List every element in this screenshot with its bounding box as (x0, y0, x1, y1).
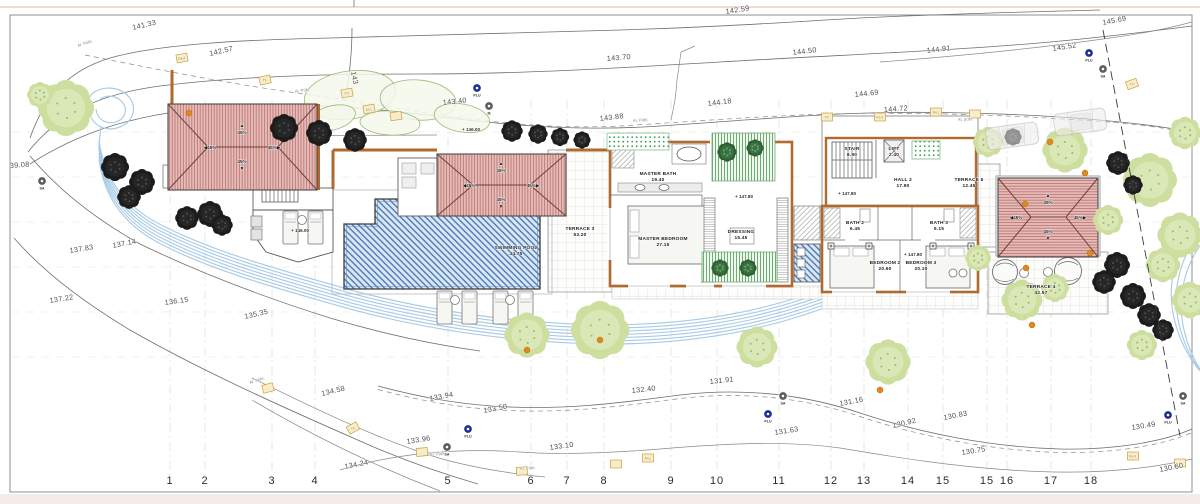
contour-elevation-label: 130.83 (943, 409, 968, 422)
roof-slope-label: 45% (496, 168, 505, 173)
closet (777, 198, 788, 282)
public-alignment-label: Al. públ. (958, 116, 973, 122)
contour-elevation-label: 144.91 (926, 43, 951, 55)
tree-light (1172, 282, 1200, 319)
utility-marker-label: PLU (1164, 421, 1172, 425)
tree-dark (1123, 175, 1142, 194)
tree-dark (528, 124, 547, 143)
utility-box-label: Red. (876, 116, 884, 120)
contour-elevation-label: 142.59 (725, 3, 750, 16)
utility-box: Arq. (643, 454, 654, 462)
contour-elevation-label: 144.50 (792, 45, 817, 57)
shrub-accent (524, 347, 530, 353)
contour-elevation-label: 130.92 (891, 416, 917, 430)
floor-level-label: + 147.80 (838, 191, 856, 196)
contour-elevation-label: 144.69 (854, 88, 879, 99)
tree-dark (1092, 270, 1116, 294)
roof-slope-label-left: ◀45% (204, 145, 217, 150)
room-name-label: TERRACE 5 (955, 177, 984, 183)
planter-box (912, 141, 940, 159)
tree-dark (270, 114, 298, 142)
utility-box: Tif. (1125, 78, 1138, 89)
shrub-accent (1047, 139, 1053, 145)
public-alignment-label: Al. Públ. (77, 38, 93, 48)
shower (824, 208, 840, 238)
shrub-accent (1087, 250, 1093, 256)
utility-box-label: Red. (1129, 455, 1137, 459)
tree-dark (306, 120, 332, 146)
tree-dark (175, 206, 199, 230)
utility-box: Arq. (931, 108, 942, 116)
shrub-accent (1022, 201, 1028, 207)
utility-box (262, 383, 275, 394)
room-name-label: LIFT (889, 146, 900, 152)
utility-marker-label: PLU (464, 435, 472, 439)
side-table (506, 296, 515, 305)
bedroom-wing (822, 206, 978, 295)
shrub-accent (1023, 265, 1029, 271)
parked-car (985, 121, 1040, 150)
room-name-label: MASTER BATH (640, 171, 677, 177)
contour-elevation-label: 136.15 (164, 295, 189, 307)
roof-slope-label-right: 45%▶ (268, 145, 281, 150)
utility-marker-label: PLU (1085, 59, 1093, 63)
contour-elevation-label: 145.52 (1052, 40, 1077, 53)
roof-slope-arrow-down: ▼ (240, 166, 245, 172)
grid-axis-number: 18 (1084, 475, 1098, 487)
tree-light (27, 82, 53, 108)
room-name-label: STAIR (844, 146, 859, 152)
utility-marker-label: M (488, 112, 491, 116)
contour-elevation-label: 142.57 (208, 44, 234, 58)
contour-elevation-label: 137.22 (49, 292, 74, 305)
grid-axis-number: 3 (268, 475, 275, 487)
utility-marker-label: SA (445, 453, 450, 457)
roof-slope-arrow-up: ▲ (240, 123, 245, 129)
grid-axis-number: 5 (444, 475, 451, 487)
utility-marker-label: PLU (764, 420, 772, 424)
tree-evergreen (739, 259, 756, 276)
utility-box: Tif. (822, 113, 833, 121)
grid-axis-number: 8 (600, 475, 607, 487)
public-alignment-label: Al. Públ. (633, 117, 649, 123)
roof-slope-label-left: ◀45% (463, 183, 476, 188)
contour-elevation-label: 39.08 (10, 160, 30, 170)
tree-dark (551, 128, 569, 146)
contour-elevation-label: 135.35 (243, 307, 269, 321)
tree-light (865, 339, 910, 384)
roof-slope-label: 45% (1043, 200, 1052, 205)
utility-marker-label: SA (1181, 402, 1186, 406)
grid-axis-number: 6 (527, 475, 534, 487)
utility-box: Tif. (259, 75, 271, 85)
grid-axis-number: 2 (201, 475, 208, 487)
shrub-accent (1082, 170, 1088, 176)
room-area-label: 9.15 (934, 226, 944, 232)
tree-light (965, 245, 991, 271)
room-name-label: MASTER BEDROOM (638, 236, 687, 242)
tree-light (571, 301, 629, 359)
room-area-label: 20.60 (878, 266, 891, 272)
roof-slope-arrow-down: ▼ (1046, 236, 1051, 242)
shrub-accent (877, 387, 883, 393)
tree-dark (501, 120, 523, 142)
grid-axis-number: 15 (936, 475, 950, 487)
contour-elevation-label: 130.75 (961, 444, 986, 457)
roof-slope-label-right: 45%▶ (527, 183, 540, 188)
public-alignment-label: Al. Públ. (430, 451, 446, 457)
shrub-accent (186, 110, 192, 116)
grid-axis-number: 14 (901, 475, 915, 487)
room-area-label: 12.45 (962, 183, 975, 189)
tree-light (1127, 330, 1157, 360)
utility-box-label: Tif. (824, 116, 829, 120)
roof-slope-label: 45% (237, 130, 246, 135)
contour-elevation-label: 137.14 (112, 237, 137, 250)
site-plan-page: Red.Tif.Tif.Arq.Tif.Red.Arq.Tif.Tif.Arq.… (0, 0, 1200, 504)
room-name-label: BATH 3 (930, 220, 948, 226)
contour-elevation-label: 143.88 (599, 111, 624, 123)
room-area-label: 27.15 (656, 242, 669, 248)
room-area-label: 17.90 (896, 183, 909, 189)
public-alignment-label: Al. Públ. (520, 465, 536, 471)
tree-dark (117, 185, 141, 209)
grid-axis-number: 10 (710, 475, 724, 487)
contour-elevation-label: 131.63 (774, 424, 799, 437)
contour-elevation-label: 145.69 (1102, 14, 1127, 27)
tree-evergreen (717, 142, 736, 161)
grid-axis-number: 4 (311, 475, 318, 487)
utility-box-label: Arq. (645, 457, 652, 461)
utility-marker-label: SA (1101, 75, 1106, 79)
roof-slope-label-left: ◀45% (1010, 215, 1023, 220)
utility-marker-label: PLU (473, 94, 481, 98)
tree-evergreen (711, 259, 728, 276)
grid-axis-number: 17 (1044, 475, 1058, 487)
tree-light (1093, 205, 1123, 235)
room-area-label: 6.45 (850, 226, 860, 232)
room-area-label: 15.45 (734, 235, 747, 241)
roof-slope-label: 45% (237, 159, 246, 164)
tree-dark (1120, 283, 1146, 309)
room-name-label: BATH 2 (846, 220, 864, 226)
basin (635, 185, 645, 191)
room-name-label: TERRACE 4 (1027, 284, 1056, 290)
utility-box-label: Arq. (933, 111, 940, 115)
contour-elevation-label: 130.60 (1159, 461, 1184, 474)
utility-box (416, 448, 428, 457)
room-area-label: 20.10 (914, 266, 927, 272)
grid-axis-number: 1 (166, 475, 173, 487)
contour-elevation-label: 131.91 (709, 375, 734, 386)
contour-elevation-label: 144.18 (707, 96, 732, 108)
roof-slope-arrow-up: ▲ (499, 161, 504, 167)
shrub-accent (1029, 322, 1035, 328)
side-table (451, 296, 460, 305)
utility-box (390, 111, 402, 120)
bed (628, 206, 706, 264)
tree-dark (343, 128, 367, 152)
contour-elevation-label: 137.83 (69, 242, 94, 255)
floor-level-label: + 146.00 (462, 127, 480, 132)
room-name-label: BEDROOM 2 (870, 260, 901, 266)
contour-elevation-label: 134.58 (320, 383, 346, 398)
tree-dark (1152, 319, 1174, 341)
utility-box (611, 460, 622, 468)
room-name-label: SWIMMING POOL (494, 245, 537, 251)
floor-level-label: + 147.80 (904, 252, 922, 257)
room-name-label: HALL 2 (894, 177, 912, 183)
room-name-label: DRESSING (728, 229, 755, 235)
contour-elevation-label: 144.72 (884, 103, 909, 114)
tree-dark (211, 214, 233, 236)
utility-marker-label: SA (781, 402, 786, 406)
utility-box: Red. (1128, 452, 1139, 460)
tree-dark (101, 153, 129, 181)
tree-light (1146, 248, 1181, 283)
room-area-label: 2.40 (889, 152, 899, 158)
utility-marker-label: SA (40, 187, 45, 191)
contour-elevation-label: 131.16 (839, 395, 864, 408)
contour-elevation-label: 143.70 (606, 52, 631, 63)
floor-level-label: + 147.80 (735, 194, 753, 199)
room-name-label: TERRACE 3 (566, 226, 595, 232)
room-area-label: 19.40 (651, 177, 664, 183)
room-area-label: 8.90 (847, 152, 857, 158)
tree-light (736, 326, 777, 367)
room-area-label: 53.20 (573, 232, 586, 238)
grid-axis-number: 11 (772, 475, 785, 487)
grid-axis-number: 13 (857, 475, 871, 487)
room-area-label: 44.75 (509, 251, 522, 257)
room-area-label: 42.57 (1034, 290, 1047, 296)
utility-box: Tif. (341, 88, 353, 98)
exterior-stairs (794, 206, 820, 240)
utility-box: Red. (176, 53, 188, 63)
tree-light (1169, 117, 1200, 149)
roof-slope-arrow-up: ▲ (1046, 193, 1051, 199)
roof-slope-label: 45% (1043, 229, 1052, 234)
roof-west (168, 104, 317, 190)
roof-slope-label-right: 45%▶ (1074, 215, 1087, 220)
side-table (1044, 268, 1053, 277)
contour-elevation-label: 133.96 (406, 433, 431, 446)
side-table (298, 216, 307, 225)
grid-axis-number: 16 (1000, 475, 1014, 487)
contour-elevation-label: 130.49 (1131, 419, 1156, 432)
contour-elevation-label: 141.33 (131, 18, 157, 32)
roof-slope-arrow-down: ▼ (499, 204, 504, 210)
contour-elevation-label: 134.24 (344, 458, 369, 471)
grid-axis-number: 9 (667, 475, 674, 487)
grid-axis-number: 15 (980, 475, 994, 487)
utility-box: Red. (875, 113, 886, 121)
tree-evergreen (746, 139, 763, 156)
site-plan-drawing: Red.Tif.Tif.Arq.Tif.Red.Arq.Tif.Tif.Arq.… (0, 0, 1200, 504)
tree-dark (573, 131, 590, 148)
grid-axis-number: 12 (824, 475, 838, 487)
grid-axis-number: 7 (563, 475, 570, 487)
bathtub (677, 147, 701, 161)
roof-slope-label: 45% (496, 197, 505, 202)
shower (960, 208, 976, 238)
contour-elevation-label: 132.40 (631, 384, 656, 395)
contour-elevation-label: 133.50 (483, 402, 508, 415)
utility-box: Arq. (363, 104, 375, 113)
room-name-label: BEDROOM 3 (906, 260, 937, 266)
contour-elevation-label: 133.10 (549, 440, 574, 452)
basin (659, 185, 669, 191)
floor-level-label: + 146.00 (291, 228, 309, 233)
shrub-accent (597, 337, 603, 343)
